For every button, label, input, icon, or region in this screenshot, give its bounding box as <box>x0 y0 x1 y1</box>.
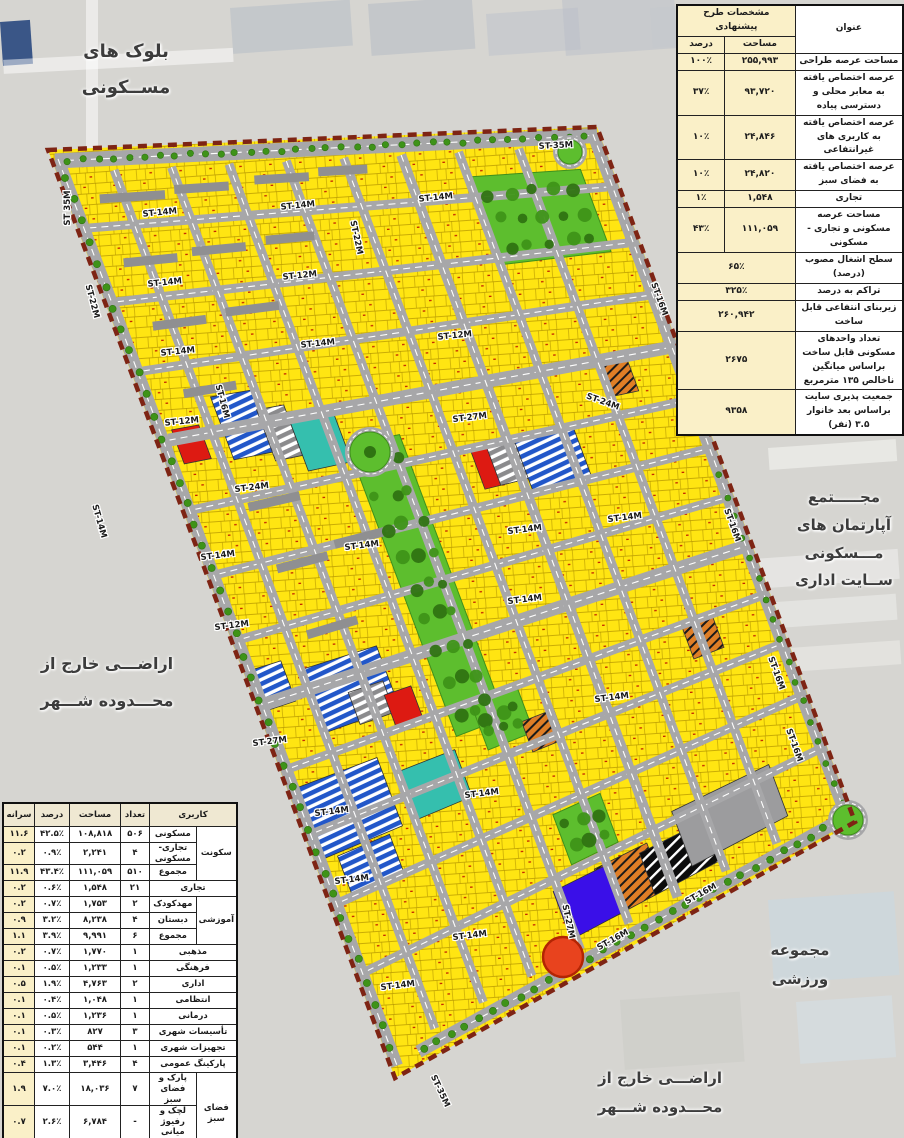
tree <box>476 1015 483 1022</box>
table-cell: ۴,۷۶۳ <box>70 977 121 993</box>
table-cell: ۱٪ <box>677 191 725 208</box>
table-cell: ۴۳.۴٪ <box>35 865 70 881</box>
table-cell: زیربنای انتفاعی قابل ساخت <box>795 300 903 331</box>
table-cell: فرهنگی <box>150 961 238 977</box>
tree <box>506 188 519 201</box>
tree <box>364 446 376 458</box>
tree <box>382 524 396 538</box>
tree <box>345 935 352 942</box>
table-cell: پارکینگ عمومی <box>150 1057 238 1073</box>
tree <box>478 713 493 728</box>
tree <box>279 148 285 154</box>
tree <box>296 804 303 811</box>
table-cell: ۱۸,۰۳۶ <box>70 1073 121 1106</box>
table-cell: ۵۰۶ <box>121 827 150 843</box>
table-cell: ۱.۱ <box>3 929 35 945</box>
tree <box>143 390 150 397</box>
satellite-feature <box>230 0 353 54</box>
table-cell: درصد <box>677 36 725 53</box>
landuse-row: تأسیسات شهری۳۸۲۷۰.۳٪۰.۱ <box>3 1025 237 1041</box>
tree <box>309 145 315 151</box>
tree <box>438 580 447 589</box>
tree <box>208 564 215 571</box>
tree <box>815 738 821 744</box>
tree <box>781 847 788 854</box>
tree <box>455 669 469 683</box>
table-cell: جمعیت پذیری سایت براساس بعد خانوار ۳.۵ (… <box>795 390 903 435</box>
tree <box>444 139 450 145</box>
tree <box>747 555 753 561</box>
tree <box>418 516 429 527</box>
tree <box>103 284 110 291</box>
table-cell: ۹۳,۷۲۰ <box>725 70 796 115</box>
table-cell: ۹,۹۹۱ <box>70 929 121 945</box>
landuse-row: فرهنگی۱۱,۲۳۳۰.۵٪۰.۱ <box>3 961 237 977</box>
label-residential-blocks: بلوک های مســکونی <box>46 34 206 106</box>
table-cell: سطح اشغال مصوب (درصد) <box>795 253 903 284</box>
table-cell: ۱.۳٪ <box>35 1057 70 1073</box>
tree <box>578 208 592 222</box>
tree <box>312 849 319 856</box>
tree <box>443 676 456 689</box>
tree <box>421 1045 428 1052</box>
tree <box>433 604 447 618</box>
tree <box>521 239 531 249</box>
table-cell: ۲۶۷۵ <box>677 331 795 390</box>
tree <box>513 718 523 728</box>
tree <box>819 824 826 831</box>
tree <box>478 693 491 706</box>
table-cell: مسکونی <box>150 827 197 843</box>
tree <box>240 653 247 660</box>
site-plan-canvas: ST 35MST-35MST-14MST-14MST-14MST-12MST-1… <box>0 0 904 1138</box>
table-cell: ۰.۹٪ <box>35 843 70 865</box>
spec-row: تجاری۱,۵۴۸۱٪ <box>677 191 903 208</box>
tree <box>142 154 148 160</box>
tree <box>322 870 329 877</box>
tree <box>127 154 133 160</box>
table-cell: ۰.۵ <box>3 977 35 993</box>
tree <box>470 705 481 716</box>
table-cell: ۶ <box>121 929 150 945</box>
tree <box>369 492 379 502</box>
tree <box>198 542 205 549</box>
tree <box>566 183 580 197</box>
table-cell: ۰.۷ <box>3 1106 35 1138</box>
table-cell: ۰.۵٪ <box>35 1009 70 1025</box>
tree <box>176 479 183 486</box>
spec-row: تراکم به درصد۳۲۵٪ <box>677 283 903 300</box>
table-cell: ۱۰۰٪ <box>677 53 725 70</box>
tree <box>414 140 420 146</box>
tree <box>495 211 506 222</box>
table-cell: تجهیزات شهری <box>150 1041 238 1057</box>
table-cell: عنوان <box>795 5 903 53</box>
tree <box>265 719 272 726</box>
landuse-table: کاربریتعدادمساحتدرصدسرانهسکونتمسکونی۵۰۶۱… <box>2 802 238 1138</box>
table-cell: درمانی <box>150 1009 238 1025</box>
table-cell: کاربری <box>150 803 238 827</box>
table-cell: ۳,۴۴۶ <box>70 1057 121 1073</box>
table-cell: ۰.۷٪ <box>35 897 70 913</box>
tree <box>292 146 298 152</box>
table-cell: ۲۶۰,۹۴۲ <box>677 300 795 331</box>
table-cell: ۲ <box>121 977 150 993</box>
tree <box>504 136 510 142</box>
table-cell: ۵۱۰ <box>121 865 150 881</box>
tree <box>526 184 536 194</box>
table-cell: ۲۴,۸۲۰ <box>725 160 796 191</box>
landuse-header-row: کاربریتعدادمساحتدرصدسرانه <box>3 803 237 827</box>
table-cell: ۲۵۵,۹۹۳ <box>725 53 796 70</box>
tree <box>168 458 175 465</box>
tree <box>429 645 441 657</box>
table-cell: ۰.۲ <box>3 897 35 913</box>
tree <box>770 616 776 622</box>
table-cell: ۳۷٪ <box>677 70 725 115</box>
table-cell: ۱ <box>121 961 150 977</box>
tree <box>64 158 70 164</box>
tree <box>792 679 798 685</box>
table-cell: ۱۰٪ <box>677 115 725 160</box>
tree <box>322 144 328 150</box>
tree <box>455 708 469 722</box>
table-cell: تأسیسات شهری <box>150 1025 238 1041</box>
table-cell: مشخصات طرح پیشنهادی <box>677 5 795 36</box>
tree <box>807 719 813 725</box>
landuse-row: تجاری۲۱۱,۵۴۸۰.۶٪۰.۲ <box>3 881 237 897</box>
tree <box>424 576 434 586</box>
landuse-row: فضای سبزپارک و فضای سبز۷۱۸,۰۳۶۷.۰٪۱.۹ <box>3 1073 237 1106</box>
tree <box>584 234 594 244</box>
tree <box>794 841 801 848</box>
label-outside-city-bottom: اراضـــی خارج از محـــدوده شـــهر <box>572 1064 748 1121</box>
tree <box>763 597 769 603</box>
tree <box>187 150 193 156</box>
tree <box>78 217 85 224</box>
tree <box>592 809 605 822</box>
tree <box>447 640 460 653</box>
tree <box>518 214 528 224</box>
tree <box>394 516 408 530</box>
table-cell: ۶۵٪ <box>677 253 795 284</box>
tree <box>125 347 132 354</box>
tree <box>752 864 759 871</box>
table-cell: ۰.۳٪ <box>35 1025 70 1041</box>
table-cell: ۱,۲۳۶ <box>70 1009 121 1025</box>
spec-row: مساحت عرصه طراحی۲۵۵,۹۹۳۱۰۰٪ <box>677 53 903 70</box>
table-cell: ۹۳۵۸ <box>677 390 795 435</box>
satellite-feature <box>620 992 745 1070</box>
tree <box>786 659 792 665</box>
table-cell: مساحت <box>725 36 796 53</box>
tree <box>217 587 224 594</box>
tree <box>110 156 116 162</box>
tree <box>481 190 494 203</box>
label-outside-city-left: اراضـــی خارج از محـــدوده شـــهر <box>14 646 200 720</box>
landuse-row: درمانی۱۱,۲۳۶۰.۵٪۰.۱ <box>3 1009 237 1025</box>
landuse-row: انتظامی۱۱,۰۴۸۰.۴٪۰.۱ <box>3 993 237 1009</box>
table-cell: مجموع <box>150 865 197 881</box>
table-cell: ۰.۲ <box>3 843 35 865</box>
tree <box>109 305 116 312</box>
tree <box>461 1023 468 1030</box>
tree <box>355 144 361 150</box>
tree <box>823 761 829 767</box>
table-cell: اداری <box>150 977 238 993</box>
tree <box>429 548 439 558</box>
tree <box>233 630 240 637</box>
table-cell: ۶,۷۸۴ <box>70 1106 121 1138</box>
tree <box>777 636 783 642</box>
tree <box>577 812 590 825</box>
table-cell: مجموع <box>150 929 197 945</box>
table-cell: ۲۴,۸۴۶ <box>725 115 796 160</box>
tree <box>655 916 662 923</box>
tree <box>330 890 337 897</box>
table-cell: ۰.۲٪ <box>35 1041 70 1057</box>
tree <box>551 134 557 140</box>
table-cell: ۴۳٪ <box>677 208 725 253</box>
tree <box>379 1022 386 1029</box>
tree <box>448 1031 455 1038</box>
tree <box>807 834 814 841</box>
tree <box>369 144 375 150</box>
tree <box>248 149 254 155</box>
tree <box>586 956 593 963</box>
table-cell: مذهبی <box>150 945 238 961</box>
tree <box>372 1001 379 1008</box>
table-cell: ۱,۷۵۳ <box>70 897 121 913</box>
table-cell: تراکم به درصد <box>795 283 903 300</box>
table-cell: ۰.۱ <box>3 1009 35 1025</box>
tree <box>231 149 237 155</box>
table-cell: ۱.۹٪ <box>35 977 70 993</box>
apartment-slab <box>174 186 228 189</box>
tree <box>725 495 731 501</box>
tree <box>567 232 581 246</box>
table-cell: ۳ <box>121 1025 150 1041</box>
tree <box>724 878 731 885</box>
tree <box>225 608 232 615</box>
table-cell: ۰.۱ <box>3 993 35 1009</box>
tree <box>460 140 466 146</box>
table-cell: ۴ <box>121 1057 150 1073</box>
tree <box>547 182 561 196</box>
table-cell: عرصه اختصاص یافته به فضای سبز <box>795 160 903 191</box>
table-cell: ۰.۴ <box>3 1057 35 1073</box>
landuse-row: آموزشیمهدکودک۲۱,۷۵۳۰.۷٪۰.۲ <box>3 897 237 913</box>
tree <box>396 550 410 564</box>
apartment-slab <box>124 258 178 263</box>
table-cell: انتظامی <box>150 993 238 1009</box>
street-label: ST 35M <box>63 190 73 225</box>
tree <box>202 151 208 157</box>
tree <box>255 697 262 704</box>
tree <box>801 698 807 704</box>
tree <box>218 151 224 157</box>
tree <box>96 156 102 162</box>
tree <box>599 830 609 840</box>
tree <box>531 986 538 993</box>
tree <box>767 856 774 863</box>
table-cell: ۱۰٪ <box>677 160 725 191</box>
apartment-slab <box>192 247 246 252</box>
tree <box>545 240 554 249</box>
tree <box>502 999 509 1006</box>
table-cell: فضای سبز <box>196 1073 237 1138</box>
table-cell: ۱ <box>121 1009 150 1025</box>
spec-row: زیربنای انتفاعی قابل ساخت۲۶۰,۹۴۲ <box>677 300 903 331</box>
table-cell: ۱۰۸,۸۱۸ <box>70 827 121 843</box>
table-cell: ۸,۲۳۸ <box>70 913 121 929</box>
apartment-slab <box>266 236 314 240</box>
apartment-slab <box>100 195 165 199</box>
tree <box>401 485 411 495</box>
tree <box>411 584 424 597</box>
tree <box>446 606 455 615</box>
table-cell: ۰.۴٪ <box>35 993 70 1009</box>
table-cell: ۴ <box>121 913 150 929</box>
table-cell: مساحت عرصه مسکونی و تجاری - مسکونی <box>795 208 903 253</box>
table-cell: لچک و رفیوژ میانی <box>150 1106 197 1138</box>
table-cell: دبستان <box>150 913 197 929</box>
table-cell: مهدکودک <box>150 897 197 913</box>
table-cell: ۳.۲٪ <box>35 913 70 929</box>
spec-header-row: عنوانمشخصات طرح پیشنهادی <box>677 5 903 36</box>
tree <box>433 1038 440 1045</box>
tree <box>363 979 370 986</box>
tree <box>641 924 648 931</box>
tree <box>474 137 480 143</box>
tree <box>559 819 569 829</box>
tree <box>736 872 743 879</box>
table-cell: ۵۴۴ <box>70 1041 121 1057</box>
tree <box>669 907 676 914</box>
landuse-row: تجهیزات شهری۱۵۴۴۰.۲٪۰.۱ <box>3 1041 237 1057</box>
tree <box>506 243 518 255</box>
spec-table: عنوانمشخصات طرح پیشنهادیمساحتدرصدمساحت ع… <box>676 4 904 436</box>
tree <box>545 976 552 983</box>
label-apartment-complex: مجـــــتمع آپارتمان های مـــسکونی ســایت… <box>786 484 902 595</box>
table-cell: پارک و فضای سبز <box>150 1073 197 1106</box>
table-cell: ۱۱۱,۰۵۹ <box>725 208 796 253</box>
table-cell: ۴۲.۵٪ <box>35 827 70 843</box>
tree <box>355 955 362 962</box>
tree <box>469 669 482 682</box>
spec-row: عرصه اختصاص یافته به فضای سبز۲۴,۸۲۰۱۰٪ <box>677 160 903 191</box>
table-cell: ۰.۱ <box>3 961 35 977</box>
tree <box>499 722 508 731</box>
table-cell: ۱.۹ <box>3 1073 35 1106</box>
table-cell: تجاری <box>150 881 238 897</box>
tree <box>582 833 597 848</box>
tree <box>581 133 587 139</box>
table-cell: ۱,۵۴۸ <box>70 881 121 897</box>
table-cell: ۳۲۵٪ <box>677 283 795 300</box>
street-label: ST-35M <box>538 140 573 152</box>
table-cell: ۸۲۷ <box>70 1025 121 1041</box>
table-cell: ۲,۲۴۱ <box>70 843 121 865</box>
table-cell: سرانه <box>3 803 35 827</box>
table-cell: ۱۱.۹ <box>3 865 35 881</box>
tree <box>184 499 191 506</box>
table-cell: ۱۱.۶ <box>3 827 35 843</box>
landuse-row: اداری۲۴,۷۶۳۱.۹٪۰.۵ <box>3 977 237 993</box>
landuse-row: سکونتمسکونی۵۰۶۱۰۸,۸۱۸۴۲.۵٪۱۱.۶ <box>3 827 237 843</box>
table-cell: سکونت <box>196 827 237 881</box>
tree <box>136 369 143 376</box>
tree <box>463 639 473 649</box>
table-cell: آموزشی <box>196 897 237 945</box>
table-cell: ۴ <box>121 843 150 865</box>
table-cell: ۳.۹٪ <box>35 929 70 945</box>
tree <box>289 783 296 790</box>
tree <box>171 153 177 159</box>
spec-row: جمعیت پذیری سایت براساس بعد خانوار ۳.۵ (… <box>677 390 903 435</box>
tree <box>411 548 426 563</box>
table-cell: ۱,۲۳۳ <box>70 961 121 977</box>
table-cell: - <box>121 1106 150 1138</box>
tree <box>418 613 429 624</box>
table-cell: ۱,۷۷۰ <box>70 945 121 961</box>
tree <box>93 261 100 268</box>
table-cell: ۰.۷٪ <box>35 945 70 961</box>
table-cell: ۲ <box>121 897 150 913</box>
apartment-slab <box>254 177 308 180</box>
tree <box>263 148 269 154</box>
table-cell: ۰.۵٪ <box>35 961 70 977</box>
table-cell: ۷.۰٪ <box>35 1073 70 1106</box>
tree <box>535 134 541 140</box>
spec-row: تعداد واحدهای مسکونی قابل ساخت براساس می… <box>677 331 903 390</box>
table-cell: عرصه اختصاص یافته به معابر محلی و دسترسی… <box>795 70 903 115</box>
table-cell: ۱,۰۴۸ <box>70 993 121 1009</box>
landmark-circle <box>543 937 583 977</box>
tree <box>831 781 837 787</box>
tree <box>489 137 495 143</box>
table-cell: ۱ <box>121 945 150 961</box>
tree <box>86 239 93 246</box>
spec-row: سطح اشغال مصوب (درصد)۶۵٪ <box>677 253 903 284</box>
table-cell: مساحت عرصه طراحی <box>795 53 903 70</box>
landuse-row: مذهبی۱۱,۷۷۰۰.۷٪۰.۲ <box>3 945 237 961</box>
tree <box>338 144 344 150</box>
table-cell: ۰.۶٪ <box>35 881 70 897</box>
table-cell: ۰.۱ <box>3 1041 35 1057</box>
tree <box>518 994 525 1001</box>
table-cell: ۲۱ <box>121 881 150 897</box>
tree <box>382 142 388 148</box>
table-cell: تعداد <box>121 803 150 827</box>
landuse-row: پارکینگ عمومی۴۳,۴۴۶۱.۳٪۰.۴ <box>3 1057 237 1073</box>
tree <box>489 1007 496 1014</box>
table-cell: ۱ <box>121 993 150 1009</box>
table-cell: ۱۱۱,۰۵۹ <box>70 865 121 881</box>
tree <box>535 210 549 224</box>
tree <box>151 413 158 420</box>
tree <box>61 174 68 181</box>
tree <box>399 141 405 147</box>
table-cell: مساحت <box>70 803 121 827</box>
table-cell: ۱ <box>121 1041 150 1057</box>
table-cell: تعداد واحدهای مسکونی قابل ساخت براساس می… <box>795 331 903 390</box>
table-cell: ۱,۵۴۸ <box>725 191 796 208</box>
tree <box>430 139 436 145</box>
tree <box>508 702 518 712</box>
table-cell: ۰.۱ <box>3 1025 35 1041</box>
table-cell: ۷ <box>121 1073 150 1106</box>
